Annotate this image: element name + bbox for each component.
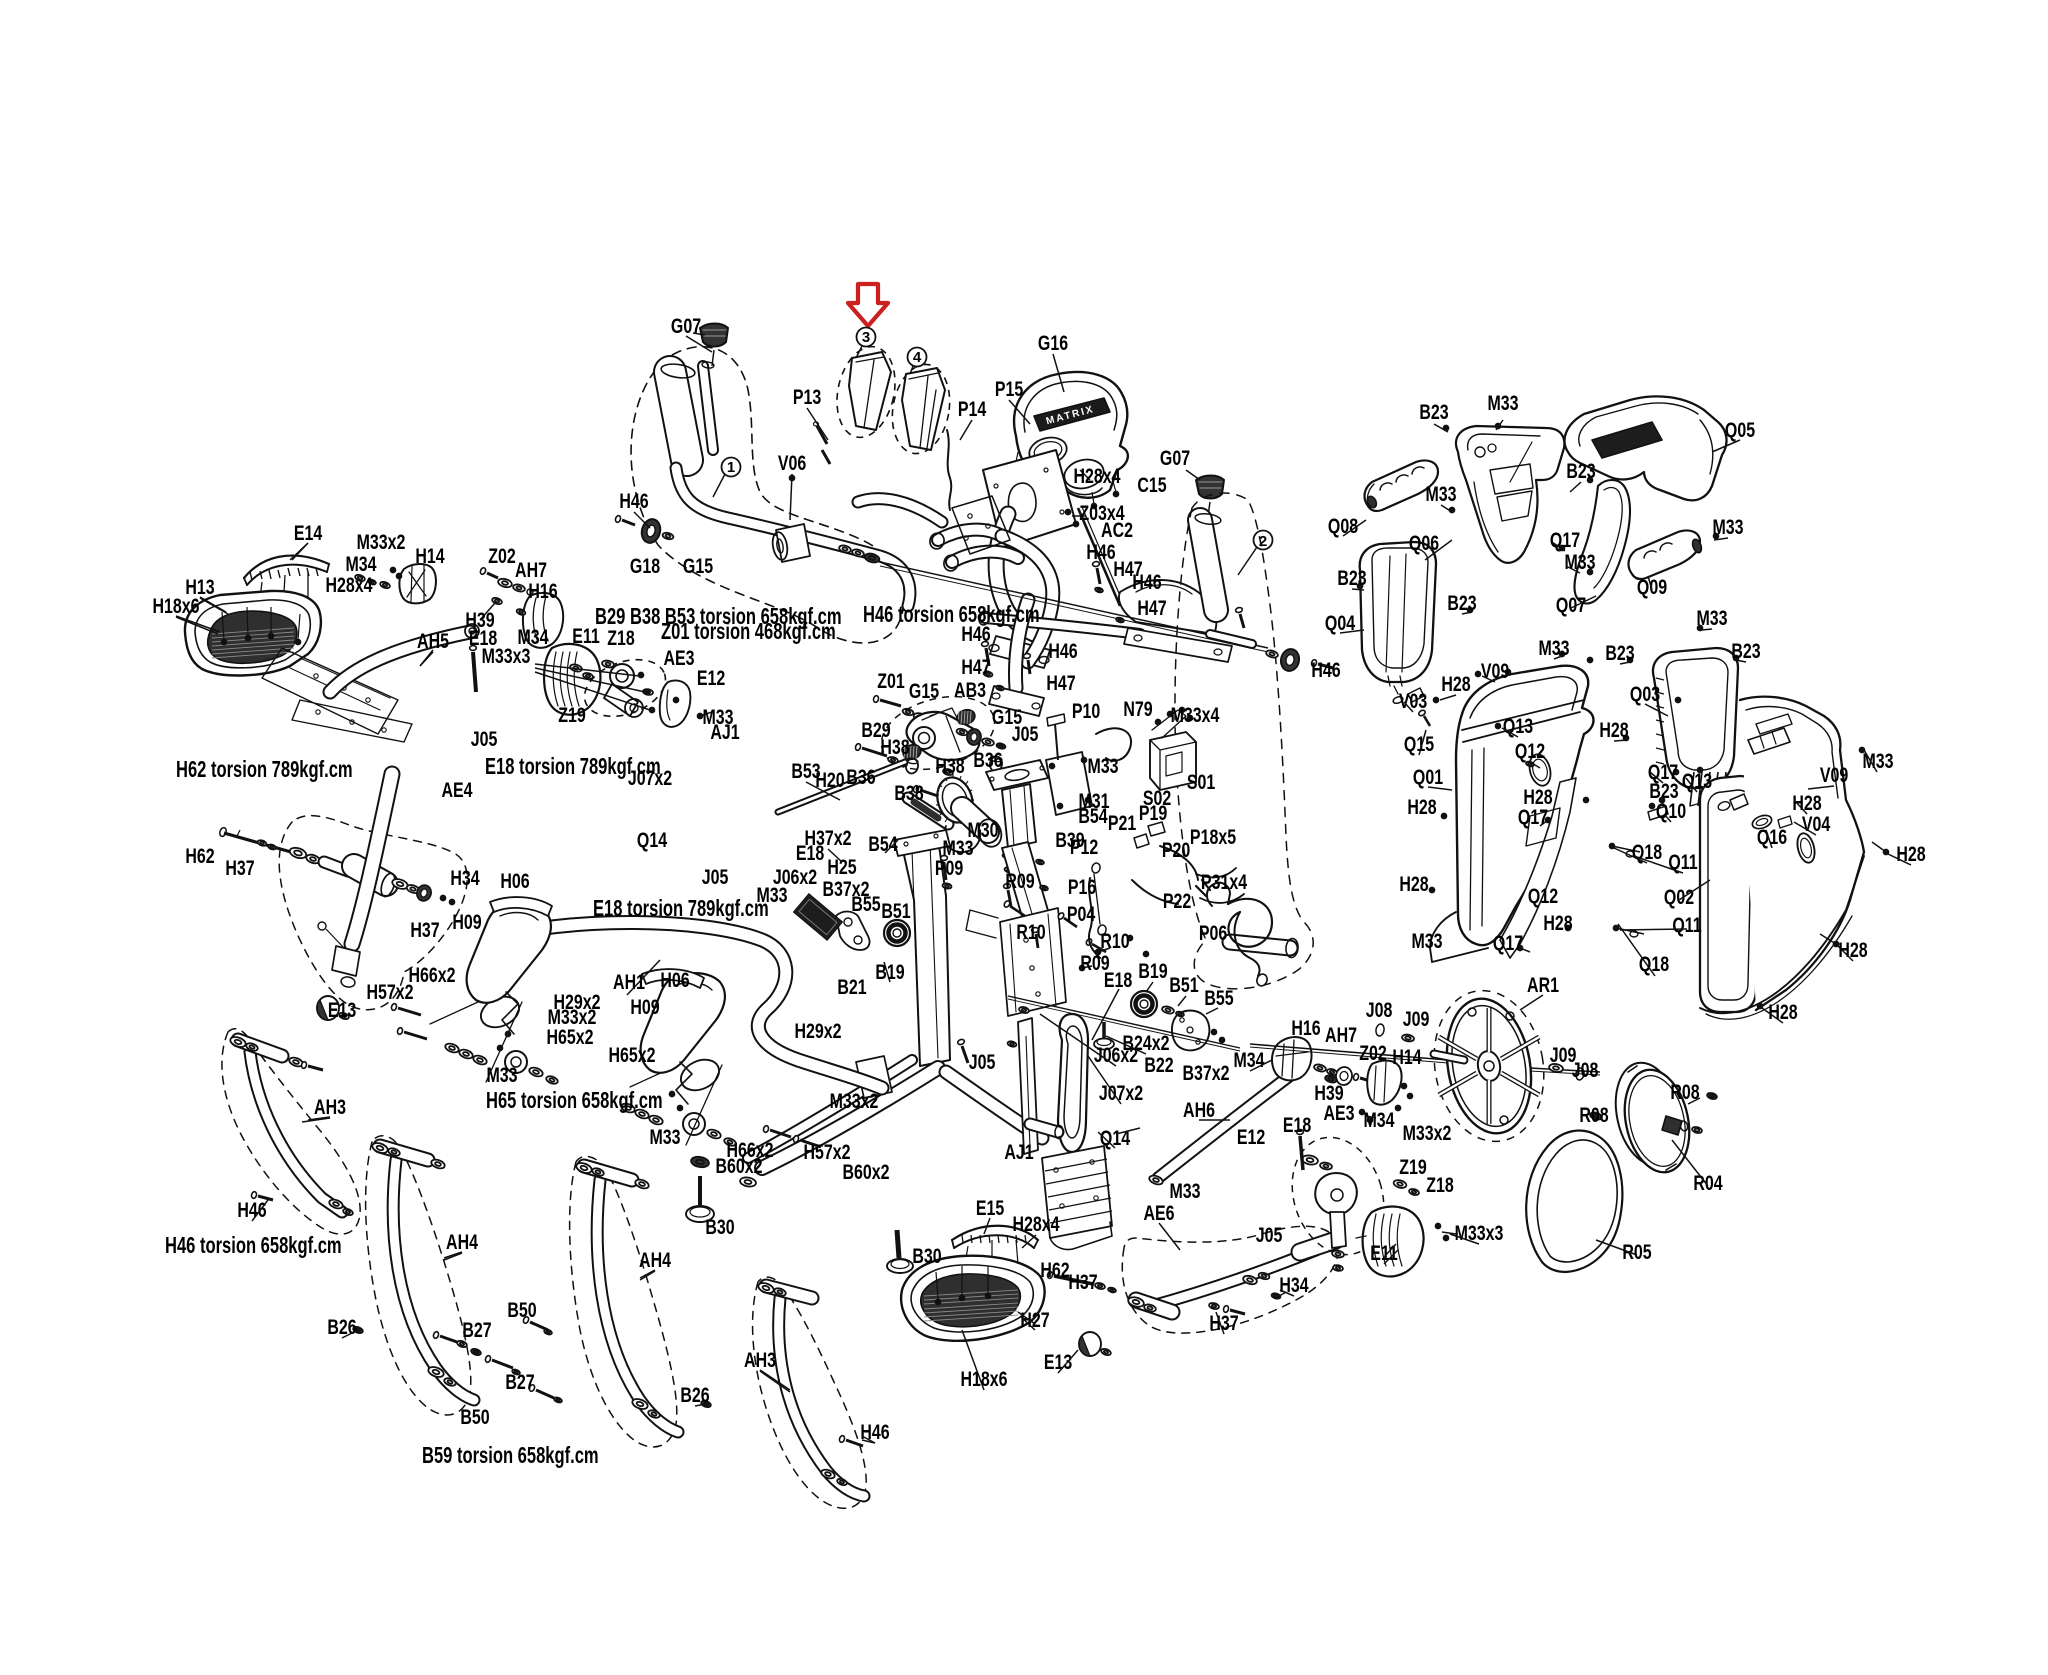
svg-text:B51: B51 (1169, 973, 1198, 997)
svg-text:J05: J05 (471, 727, 498, 751)
svg-text:B50: B50 (507, 1298, 536, 1322)
svg-text:M33x4: M33x4 (1171, 703, 1220, 727)
svg-text:1: 1 (727, 459, 735, 476)
svg-text:Q17: Q17 (1518, 805, 1548, 829)
svg-text:Q06: Q06 (1409, 531, 1439, 555)
svg-text:P22: P22 (1163, 889, 1191, 913)
svg-text:H62 torsion 789kgf.cm: H62 torsion 789kgf.cm (176, 757, 353, 782)
svg-text:H47: H47 (1046, 671, 1075, 695)
svg-text:Q12: Q12 (1528, 884, 1558, 908)
svg-text:R08: R08 (1670, 1080, 1699, 1104)
svg-text:M33: M33 (1087, 754, 1118, 778)
svg-text:Q03: Q03 (1630, 682, 1660, 706)
svg-text:Z02: Z02 (488, 544, 515, 568)
svg-text:H46 torsion 658kgf.cm: H46 torsion 658kgf.cm (165, 1233, 342, 1258)
svg-text:4: 4 (913, 349, 922, 366)
svg-text:Z01 torsion 468kgf.cm: Z01 torsion 468kgf.cm (661, 619, 836, 644)
svg-text:Q01: Q01 (1413, 765, 1443, 789)
svg-text:R10: R10 (1016, 920, 1045, 944)
svg-text:H14: H14 (1392, 1045, 1422, 1069)
svg-text:C15: C15 (1137, 473, 1166, 497)
svg-text:B50: B50 (460, 1405, 489, 1429)
svg-text:Z01: Z01 (877, 669, 904, 693)
svg-text:E18 torsion 789kgf.cm: E18 torsion 789kgf.cm (485, 754, 661, 779)
svg-text:H25: H25 (827, 855, 856, 879)
svg-text:AC2: AC2 (1101, 518, 1133, 542)
svg-text:P21: P21 (1108, 811, 1136, 835)
svg-text:G15: G15 (909, 679, 939, 703)
svg-text:B23: B23 (1566, 459, 1595, 483)
svg-text:J05: J05 (702, 865, 729, 889)
svg-text:Z02: Z02 (1359, 1041, 1386, 1065)
svg-text:B23: B23 (1731, 639, 1760, 663)
svg-text:Q16: Q16 (1757, 825, 1787, 849)
svg-text:M33: M33 (486, 1063, 517, 1087)
svg-text:Q08: Q08 (1328, 514, 1358, 538)
svg-text:M33x2: M33x2 (357, 530, 406, 554)
svg-text:H28: H28 (1399, 872, 1428, 896)
svg-text:M33: M33 (1564, 550, 1595, 574)
svg-text:AJ1: AJ1 (710, 720, 739, 744)
svg-text:H62: H62 (1040, 1258, 1069, 1282)
svg-text:B38: B38 (894, 781, 923, 805)
svg-text:B60x2: B60x2 (842, 1160, 889, 1184)
svg-text:H18x6: H18x6 (960, 1367, 1007, 1391)
svg-text:H57x2: H57x2 (366, 980, 413, 1004)
svg-text:M33: M33 (1712, 515, 1743, 539)
svg-text:E13: E13 (328, 998, 356, 1022)
svg-text:P31x4: P31x4 (1201, 870, 1248, 894)
svg-text:H28x4: H28x4 (325, 573, 373, 597)
svg-text:H46 torsion 658kgf.cm: H46 torsion 658kgf.cm (863, 602, 1040, 627)
svg-text:AB3: AB3 (954, 678, 986, 702)
svg-text:Q07: Q07 (1556, 593, 1586, 617)
svg-text:AR1: AR1 (1527, 973, 1559, 997)
svg-text:AE3: AE3 (663, 646, 694, 670)
svg-text:J09: J09 (1403, 1007, 1430, 1031)
svg-text:H16: H16 (1291, 1016, 1320, 1040)
svg-text:H14: H14 (415, 544, 445, 568)
svg-text:P20: P20 (1162, 838, 1190, 862)
svg-text:B26: B26 (680, 1383, 709, 1407)
svg-text:M33: M33 (1538, 636, 1569, 660)
svg-text:Z18: Z18 (1426, 1173, 1453, 1197)
svg-text:M33x2: M33x2 (830, 1089, 879, 1113)
svg-text:B54: B54 (1078, 804, 1108, 828)
svg-text:M33: M33 (1169, 1179, 1200, 1203)
svg-text:H37: H37 (225, 856, 254, 880)
svg-text:E18 torsion 789kgf.cm: E18 torsion 789kgf.cm (593, 896, 769, 921)
svg-text:H28: H28 (1441, 672, 1470, 696)
svg-text:B24x2: B24x2 (1122, 1031, 1169, 1055)
svg-text:B37x2: B37x2 (1182, 1061, 1229, 1085)
svg-text:B23: B23 (1419, 400, 1448, 424)
svg-text:AH7: AH7 (1325, 1023, 1357, 1047)
svg-text:H28: H28 (1407, 795, 1436, 819)
svg-text:E11: E11 (1370, 1241, 1398, 1265)
svg-text:B26: B26 (327, 1315, 356, 1339)
svg-text:H62: H62 (185, 844, 214, 868)
svg-text:AE3: AE3 (1323, 1101, 1354, 1125)
svg-text:E12: E12 (1237, 1125, 1265, 1149)
svg-text:M33: M33 (1425, 482, 1456, 506)
svg-text:AH4: AH4 (446, 1230, 478, 1254)
svg-text:Q10: Q10 (1656, 799, 1686, 823)
svg-text:H66x2: H66x2 (408, 963, 455, 987)
svg-text:R09: R09 (1005, 869, 1034, 893)
svg-text:B23: B23 (1447, 591, 1476, 615)
svg-text:B27: B27 (462, 1318, 491, 1342)
svg-text:J05: J05 (1012, 722, 1039, 746)
svg-text:H47: H47 (961, 655, 990, 679)
svg-text:H46: H46 (1086, 540, 1115, 564)
svg-text:AH3: AH3 (744, 1348, 776, 1372)
svg-text:H47: H47 (1137, 596, 1166, 620)
svg-text:B36: B36 (846, 765, 875, 789)
svg-text:H28x4: H28x4 (1073, 464, 1121, 488)
svg-text:V06: V06 (778, 451, 806, 475)
svg-text:Q17: Q17 (1493, 931, 1523, 955)
svg-text:G15: G15 (683, 554, 713, 578)
svg-text:E18: E18 (1104, 968, 1132, 992)
svg-text:B22: B22 (1144, 1053, 1173, 1077)
svg-text:P14: P14 (958, 397, 987, 421)
svg-text:J05: J05 (1256, 1223, 1283, 1247)
svg-text:B30: B30 (705, 1215, 734, 1239)
svg-text:V09: V09 (1820, 763, 1848, 787)
svg-text:Q15: Q15 (1404, 732, 1434, 756)
svg-text:P16: P16 (1068, 875, 1096, 899)
svg-text:P18x5: P18x5 (1190, 825, 1236, 849)
svg-text:H37: H37 (1068, 1270, 1097, 1294)
svg-text:H28: H28 (1599, 718, 1628, 742)
svg-text:B39: B39 (1055, 828, 1084, 852)
svg-text:P06: P06 (1199, 921, 1227, 945)
svg-text:H16: H16 (528, 579, 557, 603)
svg-text:B27: B27 (505, 1370, 534, 1394)
svg-text:R08: R08 (1579, 1103, 1608, 1127)
svg-text:B60x2: B60x2 (715, 1154, 762, 1178)
svg-text:H28: H28 (1543, 911, 1572, 935)
svg-text:Q12: Q12 (1515, 739, 1545, 763)
svg-text:P19: P19 (1139, 801, 1167, 825)
svg-text:P13: P13 (793, 385, 821, 409)
svg-text:M34: M34 (1363, 1108, 1395, 1132)
svg-text:H46: H46 (1132, 570, 1161, 594)
svg-text:H65x2: H65x2 (546, 1025, 593, 1049)
svg-text:M33: M33 (1696, 606, 1727, 630)
svg-text:M33: M33 (1487, 391, 1518, 415)
svg-text:E15: E15 (976, 1196, 1004, 1220)
svg-text:M33: M33 (1862, 749, 1893, 773)
svg-text:J09: J09 (1550, 1043, 1577, 1067)
svg-text:Q17: Q17 (1550, 528, 1580, 552)
svg-text:M33: M33 (649, 1125, 680, 1149)
svg-text:Q18: Q18 (1639, 952, 1669, 976)
svg-text:M33x3: M33x3 (482, 644, 531, 668)
svg-text:Z19: Z19 (558, 703, 585, 727)
svg-text:H38: H38 (935, 754, 964, 778)
svg-text:E14: E14 (294, 521, 323, 545)
svg-text:H28: H28 (1838, 938, 1867, 962)
svg-text:H46: H46 (237, 1198, 266, 1222)
svg-text:3: 3 (862, 329, 870, 346)
svg-text:M33x2: M33x2 (1403, 1121, 1452, 1145)
svg-text:V03: V03 (1399, 689, 1427, 713)
svg-text:AE4: AE4 (441, 778, 473, 802)
svg-text:H28: H28 (1768, 1000, 1797, 1024)
svg-text:M33x3: M33x3 (1455, 1221, 1504, 1245)
svg-text:H65x2: H65x2 (608, 1043, 655, 1067)
svg-text:H34: H34 (450, 866, 480, 890)
svg-text:V09: V09 (1481, 659, 1509, 683)
svg-text:B51: B51 (881, 899, 910, 923)
svg-text:M33: M33 (1411, 929, 1442, 953)
svg-text:R10: R10 (1100, 929, 1129, 953)
svg-text:J07x2: J07x2 (1099, 1081, 1143, 1105)
svg-text:P10: P10 (1072, 699, 1100, 723)
svg-text:B55: B55 (1204, 986, 1233, 1010)
svg-text:P04: P04 (1067, 902, 1096, 926)
svg-text:G18: G18 (630, 554, 660, 578)
svg-text:B19: B19 (1138, 959, 1167, 983)
svg-text:H46: H46 (1311, 658, 1340, 682)
svg-text:Q11: Q11 (1672, 913, 1701, 937)
svg-text:AH6: AH6 (1183, 1098, 1215, 1122)
svg-text:B36: B36 (973, 748, 1002, 772)
svg-text:Q14: Q14 (637, 828, 668, 852)
svg-text:H37: H37 (1209, 1311, 1238, 1335)
svg-text:H06: H06 (660, 968, 689, 992)
svg-text:G07: G07 (1160, 446, 1190, 470)
svg-text:Q09: Q09 (1637, 575, 1667, 599)
svg-text:E18: E18 (1283, 1113, 1311, 1137)
svg-text:AE6: AE6 (1143, 1201, 1174, 1225)
svg-text:H09: H09 (630, 995, 659, 1019)
svg-text:H38: H38 (880, 735, 909, 759)
svg-text:AH4: AH4 (639, 1248, 671, 1272)
svg-text:Q13: Q13 (1682, 769, 1712, 793)
svg-text:B23: B23 (1337, 566, 1366, 590)
svg-text:H09: H09 (452, 910, 481, 934)
svg-text:P15: P15 (995, 377, 1023, 401)
svg-text:J08: J08 (1366, 998, 1393, 1022)
svg-text:Z19: Z19 (1399, 1155, 1426, 1179)
svg-text:G07: G07 (671, 314, 701, 338)
svg-text:H46: H46 (619, 489, 648, 513)
svg-text:S01: S01 (1187, 770, 1215, 794)
svg-text:AH5: AH5 (417, 629, 449, 653)
svg-text:B30: B30 (912, 1244, 941, 1268)
svg-text:H28x4: H28x4 (1012, 1212, 1060, 1236)
svg-text:B55: B55 (851, 892, 880, 916)
svg-text:P09: P09 (935, 856, 963, 880)
svg-text:B59 torsion 658kgf.cm: B59 torsion 658kgf.cm (422, 1443, 599, 1468)
svg-text:Q13: Q13 (1503, 714, 1533, 738)
svg-text:N79: N79 (1123, 697, 1152, 721)
svg-text:H65 torsion 658kgf.cm: H65 torsion 658kgf.cm (486, 1088, 663, 1113)
svg-text:B21: B21 (837, 975, 866, 999)
svg-text:B53: B53 (791, 759, 820, 783)
svg-text:R04: R04 (1693, 1171, 1723, 1195)
svg-text:H34: H34 (1279, 1273, 1309, 1297)
svg-text:B23: B23 (1605, 641, 1634, 665)
svg-text:G16: G16 (1038, 331, 1068, 355)
svg-text:H29x2: H29x2 (794, 1019, 841, 1043)
svg-text:E12: E12 (697, 666, 725, 690)
svg-text:M34: M34 (1233, 1048, 1265, 1072)
svg-text:V04: V04 (1802, 812, 1831, 836)
svg-text:H46: H46 (1048, 639, 1077, 663)
svg-text:Q05: Q05 (1725, 418, 1755, 442)
svg-text:AJ1: AJ1 (1004, 1140, 1033, 1164)
svg-text:H06: H06 (500, 869, 529, 893)
svg-text:H18x6: H18x6 (152, 594, 199, 618)
svg-text:J05: J05 (969, 1050, 996, 1074)
svg-text:H37: H37 (410, 918, 439, 942)
svg-text:AH3: AH3 (314, 1095, 346, 1119)
svg-text:E18: E18 (796, 841, 824, 865)
svg-text:Q02: Q02 (1664, 885, 1694, 909)
svg-text:H28: H28 (1896, 842, 1925, 866)
